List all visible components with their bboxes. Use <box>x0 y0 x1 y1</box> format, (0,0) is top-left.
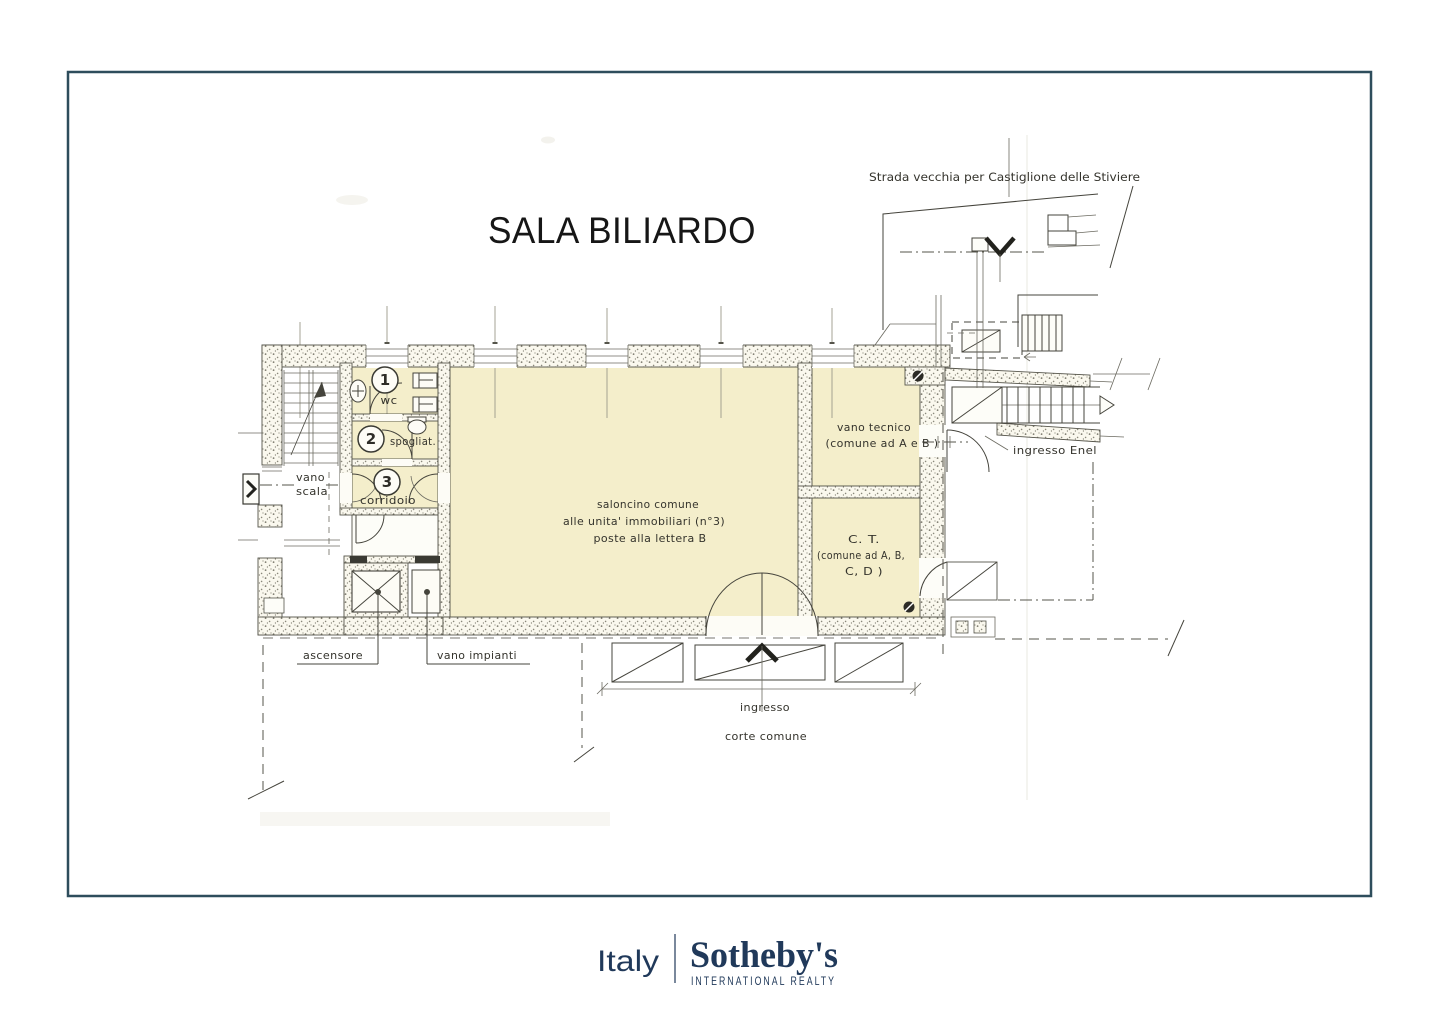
wc-label: wc <box>381 394 398 407</box>
ct-label-line1: C. T. <box>848 533 880 546</box>
road-label: Strada vecchia per Castiglione delle Sti… <box>869 170 1140 184</box>
brand-region: Italy <box>597 945 659 978</box>
vano-scala-label-line2: scala <box>296 485 328 498</box>
vano-tecnico-label-line1: vano tecnico <box>837 421 911 434</box>
ct-label-line2: (comune ad A, B, <box>817 549 905 562</box>
brand-name: Sotheby's <box>690 935 838 976</box>
brand-subtitle: INTERNATIONAL REALTY <box>691 976 836 988</box>
saloncino-label-line3: poste alla lettera B <box>594 532 707 545</box>
ascensore-label: ascensore <box>303 649 363 662</box>
spogliatoio-label: spogliat. <box>390 435 436 448</box>
corridoio-label: corridoio <box>360 494 416 507</box>
brand-footer: Italy Sotheby's INTERNATIONAL REALTY <box>597 934 838 988</box>
floor-plan-document: SALA BILIARDO <box>0 0 1440 1018</box>
corte-comune-label: corte comune <box>725 730 807 743</box>
saloncino-label-line2: alle unita' immobiliari (n°3) <box>563 515 725 528</box>
vano-impianti-label: vano impianti <box>437 649 517 662</box>
page-title: SALA BILIARDO <box>488 210 756 251</box>
room-number-2: 2 <box>366 430 376 448</box>
room-number-1: 1 <box>380 371 390 389</box>
vano-scala-label-line1: vano <box>296 471 325 484</box>
ingresso-enel-label: ingresso Enel <box>1013 444 1097 457</box>
room-number-3: 3 <box>382 473 392 491</box>
ingresso-label: ingresso <box>740 701 790 714</box>
room-saloncino <box>450 367 798 617</box>
ct-label-line3: C, D ) <box>845 565 883 578</box>
vano-tecnico-label-line2: (comune ad A e B ) <box>826 437 939 450</box>
saloncino-label-line1: saloncino comune <box>597 498 699 511</box>
floor-plan-canvas: SALA BILIARDO <box>0 0 1440 1018</box>
